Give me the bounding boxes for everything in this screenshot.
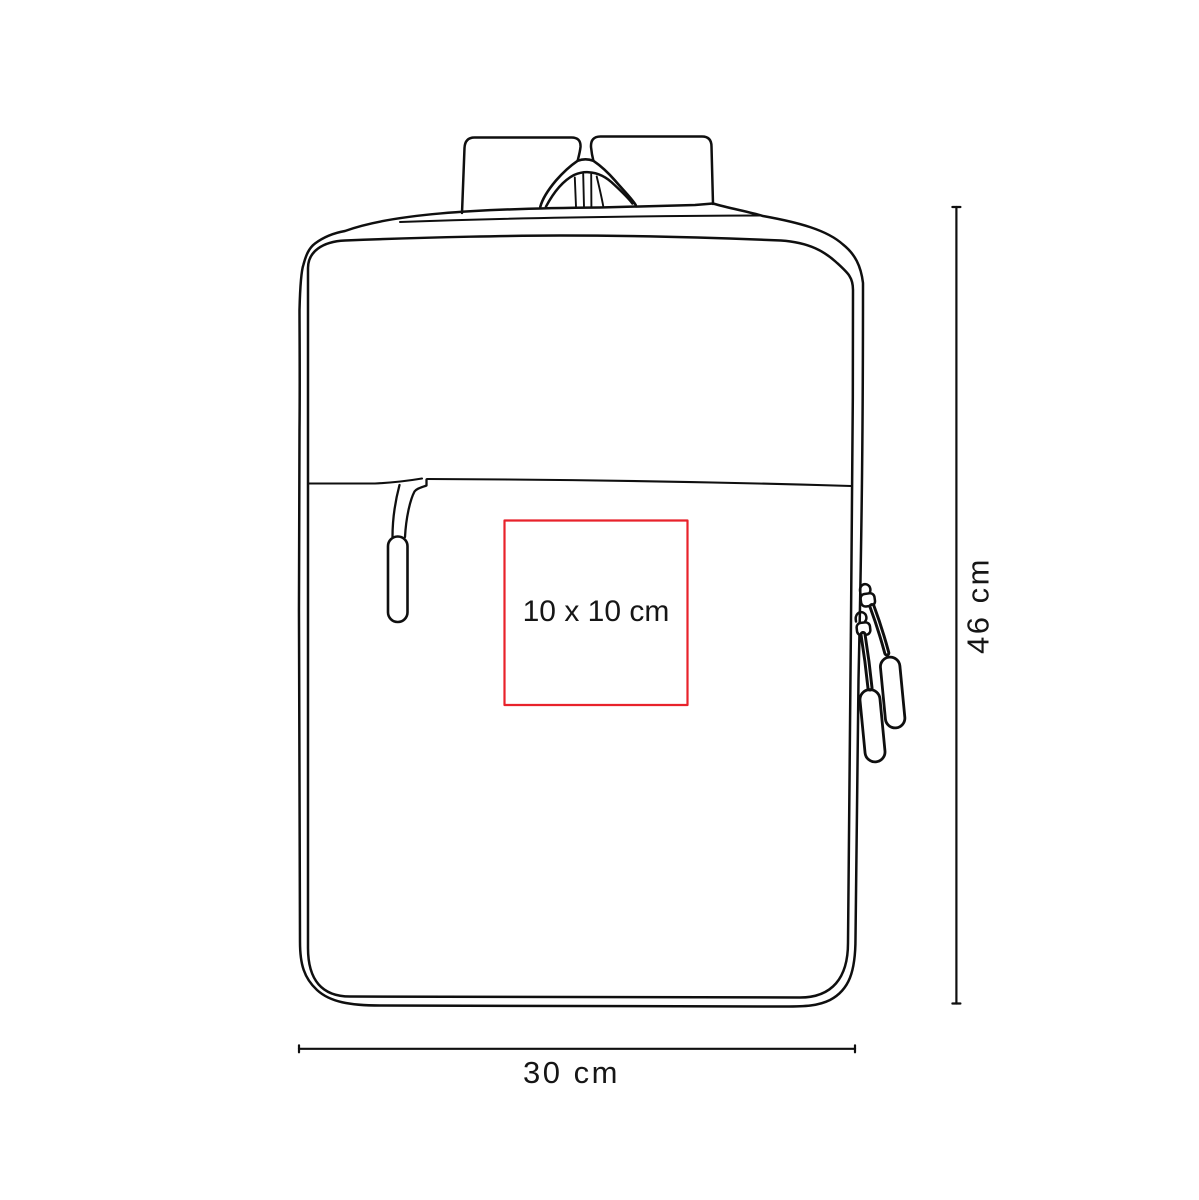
svg-text:10 x 10 cm: 10 x 10 cm — [523, 595, 670, 628]
svg-text:30 cm: 30 cm — [523, 1055, 620, 1090]
svg-text:46 cm: 46 cm — [961, 557, 996, 654]
